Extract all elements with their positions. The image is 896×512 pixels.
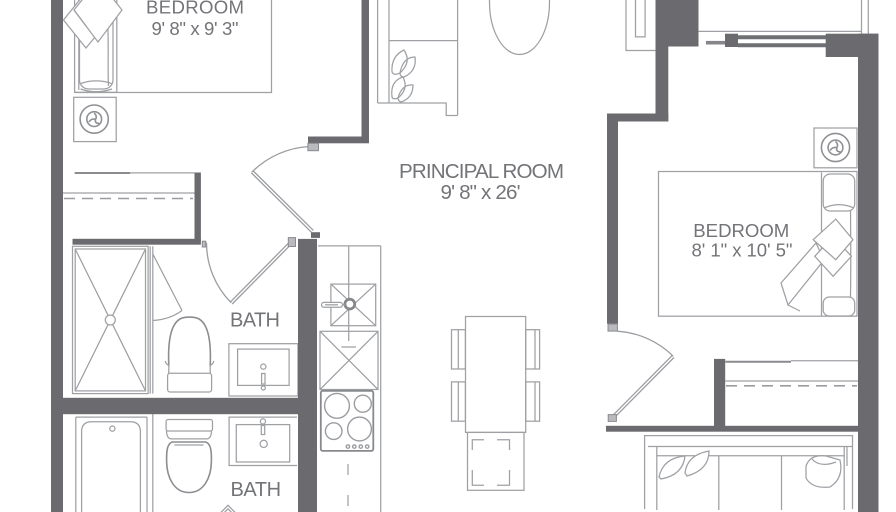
- svg-text:BATH: BATH: [230, 310, 280, 332]
- svg-text:9' 8" x 26': 9' 8" x 26': [441, 181, 521, 204]
- svg-text:BEDROOM: BEDROOM: [693, 220, 789, 241]
- svg-text:PRINCIPAL ROOM: PRINCIPAL ROOM: [399, 160, 564, 183]
- svg-text:BEDROOM: BEDROOM: [146, 0, 244, 18]
- svg-text:8' 1" x 10' 5": 8' 1" x 10' 5": [692, 239, 793, 260]
- svg-text:BATH: BATH: [231, 479, 281, 501]
- svg-text:9' 8" x 9' 3": 9' 8" x 9' 3": [152, 18, 239, 39]
